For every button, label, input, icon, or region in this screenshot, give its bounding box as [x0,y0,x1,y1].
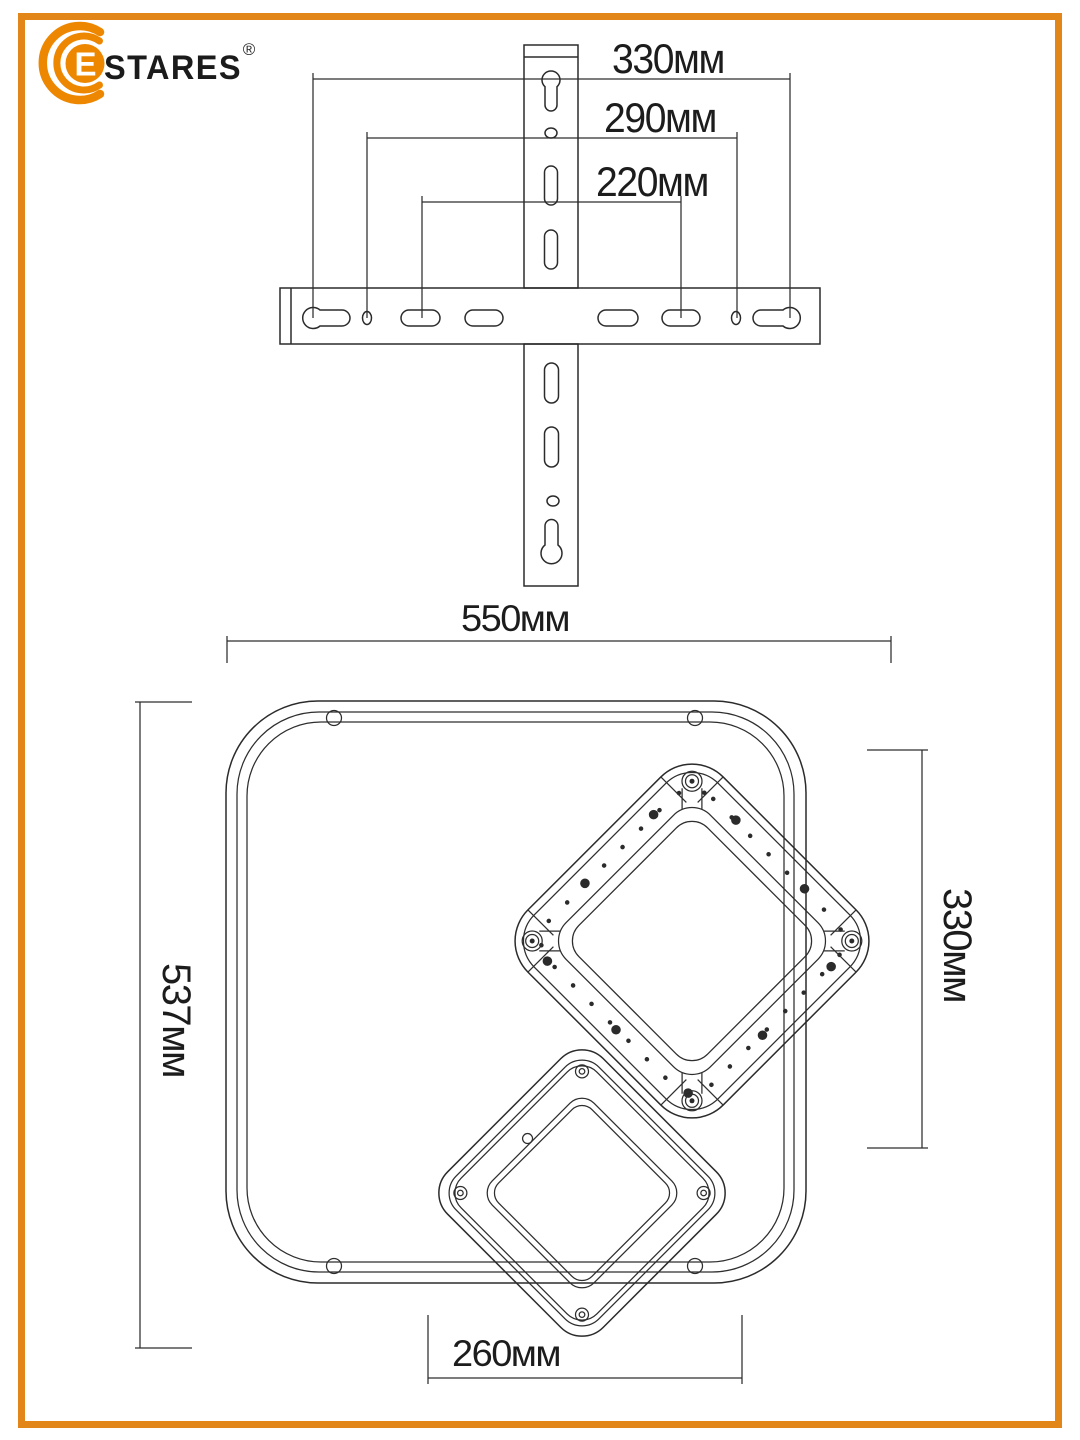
square-screw-hole-top-right [688,711,703,726]
square-screw-hole-bottom-left [327,1259,342,1274]
product-dimension-sheet: E STARES ® 330мм [0,0,1080,1440]
dim-label-220: 220мм [596,158,708,205]
lamp-small-diamond-ring [426,1037,737,1348]
dim-label-290: 290мм [604,94,716,141]
dim-label-330-right: 330мм [935,888,979,1002]
dim-label-550: 550мм [461,598,569,639]
lamp-dim-550: 550мм [227,598,891,663]
logo-initial: E [74,46,96,83]
keyhole-slot-top [542,71,560,111]
diamond-opening-inner [563,812,820,1069]
lamp-dim-330: 330мм [867,750,979,1148]
keyhole-slot-bottom [541,520,562,564]
small-hole-top [545,128,557,138]
square-screw-hole-top-left [327,711,342,726]
square-outline-outer [226,701,806,1283]
keyhole-slot-left [303,308,350,329]
bracket-drawing: 330мм 290мм 220мм [280,35,820,586]
dim-label-537: 537мм [154,963,198,1077]
bracket-dim-220: 220мм [422,158,708,318]
small-diamond-outline-outer [426,1037,737,1348]
square-outline-middle [237,712,794,1272]
lamp-dim-537: 537мм [135,702,198,1348]
small-diamond-screws [451,1062,713,1324]
logo-text: STARES [104,49,242,87]
mount-hole-ring [527,776,857,1106]
dim-label-260: 260мм [452,1333,560,1374]
slot-h-1 [401,310,440,326]
slot-vertical-1 [545,166,558,205]
keyhole-slot-right [753,308,800,329]
lamp-square-ring [226,701,806,1283]
square-screw-hole-bottom-right [688,1259,703,1274]
registered-mark: ® [243,40,256,59]
small-diamond-opening-inner [489,1100,676,1287]
page-border [22,17,1059,1425]
bracket-horizontal-plate [280,288,820,344]
diagram-canvas: E STARES ® 330мм [0,0,1080,1440]
bracket-dim-330: 330мм [313,35,790,318]
diamond-opening-outer [548,797,836,1085]
slot-vertical-3 [545,363,559,403]
slot-h-2 [465,310,503,326]
small-hole-bottom [547,496,559,506]
square-outline-inner [247,722,784,1262]
lamp-drawing: 550мм 537мм 330мм 260мм [135,598,979,1384]
small-hole-h2 [732,312,741,325]
bracket-vertical-plate-bottom [524,344,578,586]
slot-h-3 [598,310,638,326]
brand-logo: E STARES ® [43,26,256,100]
small-diamond-wire-hole [520,1131,534,1145]
slot-vertical-4 [545,427,559,467]
dim-label-330: 330мм [612,35,724,82]
slot-vertical-2 [545,230,558,269]
